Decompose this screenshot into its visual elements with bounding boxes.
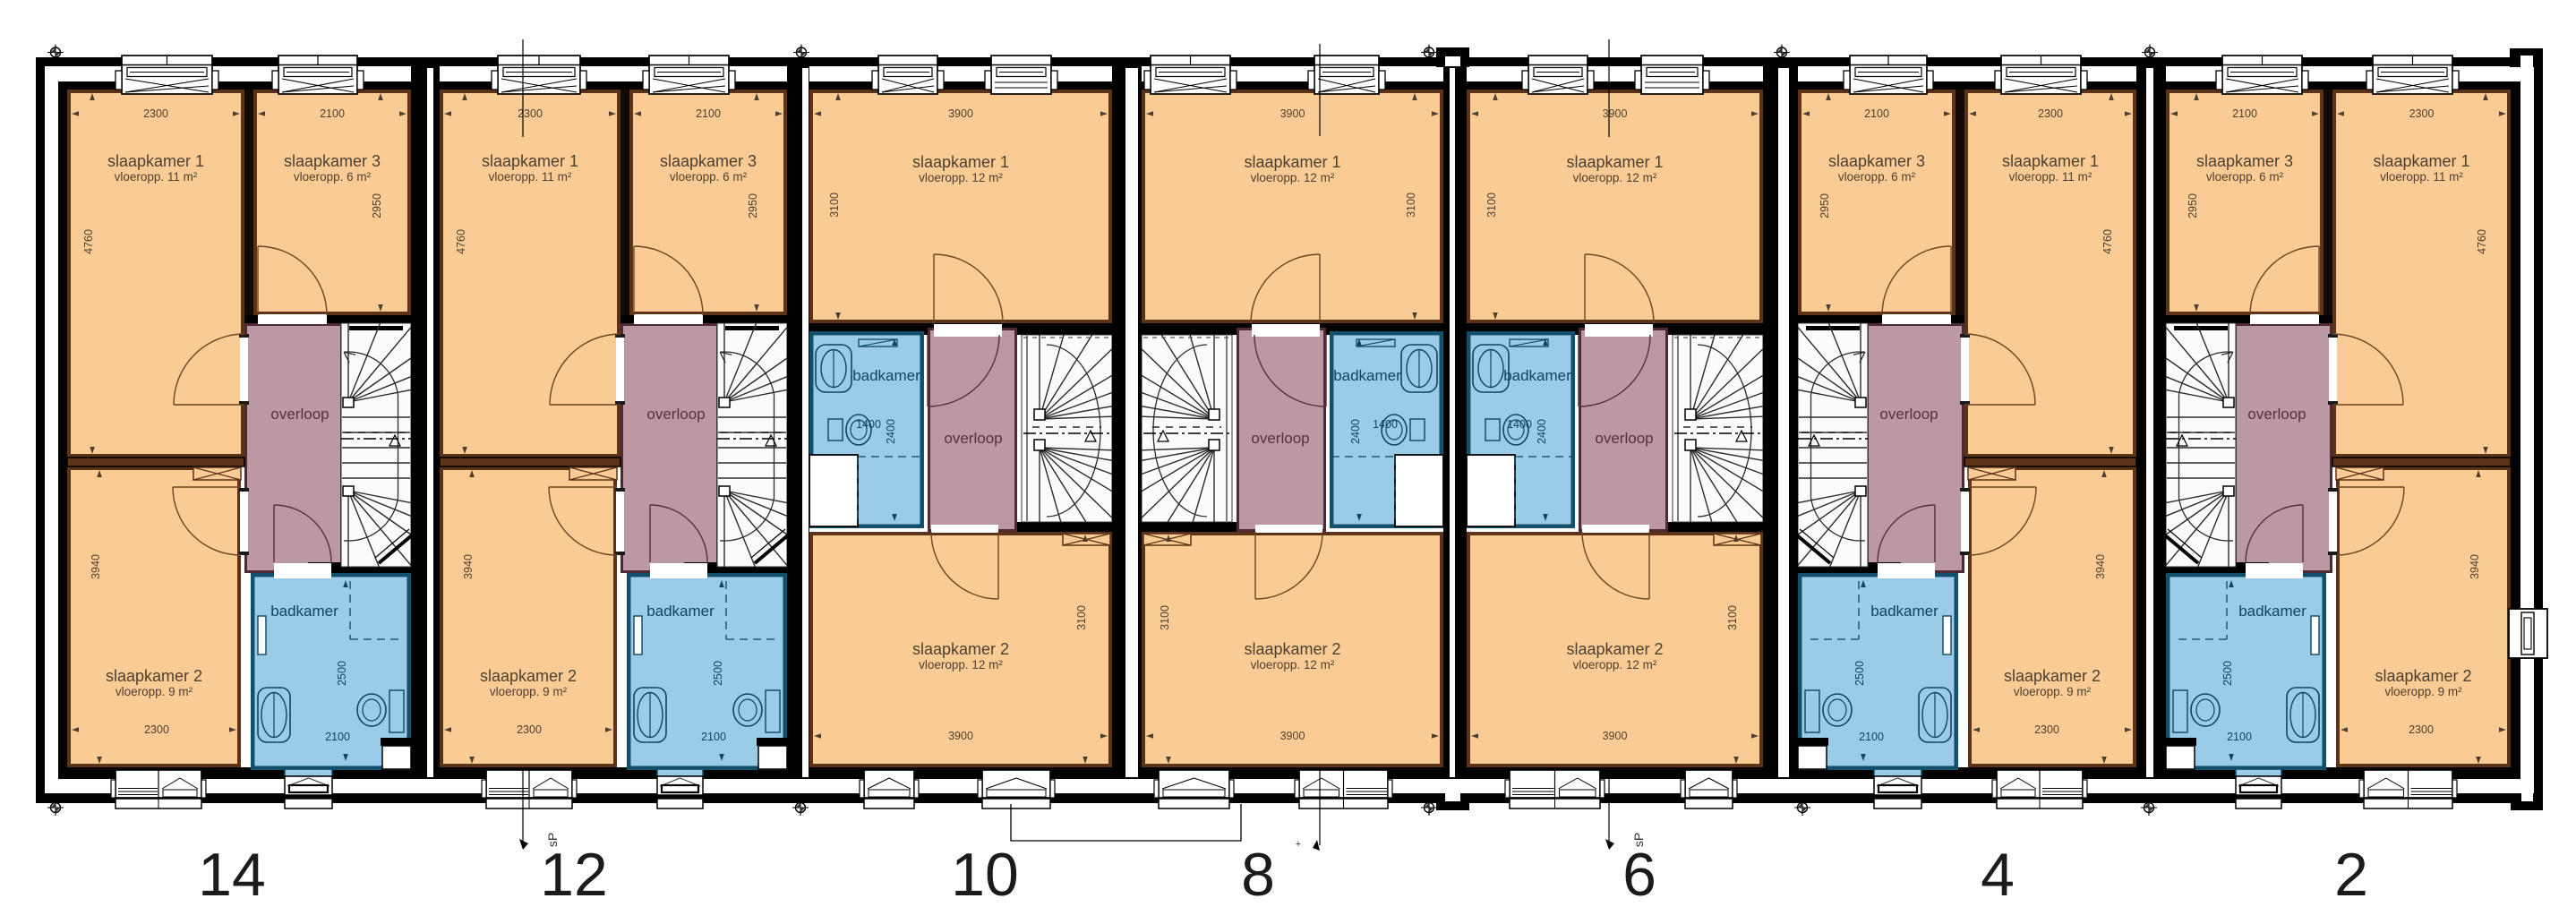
svg-text:badkamer: badkamer [2238, 603, 2306, 620]
svg-text:2100: 2100 [2227, 731, 2252, 743]
svg-text:4760: 4760 [2476, 229, 2488, 254]
svg-text:slaapkamer 3: slaapkamer 3 [2196, 152, 2293, 170]
svg-text:1400: 1400 [1373, 418, 1398, 431]
svg-text:3940: 3940 [2094, 554, 2107, 579]
svg-text:vloeropp. 6 m²: vloeropp. 6 m² [2206, 170, 2284, 184]
svg-text:3940: 3940 [462, 554, 475, 579]
svg-text:badkamer: badkamer [1503, 367, 1571, 384]
svg-text:badkamer: badkamer [270, 603, 338, 620]
svg-text:8: 8 [1241, 841, 1275, 909]
svg-text:3100: 3100 [828, 192, 841, 218]
svg-text:3900: 3900 [1280, 107, 1305, 120]
svg-text:slaapkamer 2: slaapkamer 2 [480, 667, 577, 685]
svg-text:2300: 2300 [143, 107, 168, 120]
svg-text:4: 4 [1981, 841, 2015, 909]
svg-text:slaapkamer 1: slaapkamer 1 [912, 153, 1009, 171]
svg-text:4760: 4760 [82, 229, 95, 254]
svg-text:slaapkamer 2: slaapkamer 2 [912, 640, 1009, 658]
svg-text:12: 12 [540, 841, 608, 909]
svg-text:vloeropp. 9 m²: vloeropp. 9 m² [2384, 685, 2462, 698]
svg-text:3900: 3900 [948, 107, 973, 120]
svg-text:vloeropp. 11 m²: vloeropp. 11 m² [115, 170, 198, 184]
svg-text:3900: 3900 [1603, 730, 1628, 742]
svg-text:2500: 2500 [712, 661, 724, 686]
svg-text:slaapkamer 2: slaapkamer 2 [106, 667, 202, 685]
svg-text:1400: 1400 [1507, 418, 1532, 431]
svg-text:vloeropp. 11 m²: vloeropp. 11 m² [2380, 170, 2463, 184]
svg-text:3940: 3940 [90, 554, 102, 579]
svg-text:2100: 2100 [320, 107, 345, 120]
svg-text:vloeropp. 6 m²: vloeropp. 6 m² [1838, 170, 1916, 184]
svg-text:slaapkamer 1: slaapkamer 1 [482, 152, 578, 170]
svg-text:2950: 2950 [2187, 193, 2199, 218]
svg-text:2100: 2100 [325, 731, 350, 743]
svg-text:vloeropp. 11 m²: vloeropp. 11 m² [489, 170, 572, 184]
svg-text:2: 2 [2334, 841, 2368, 909]
svg-text:vloeropp. 12 m²: vloeropp. 12 m² [919, 171, 1003, 184]
svg-text:vloeropp. 12 m²: vloeropp. 12 m² [1573, 658, 1657, 672]
svg-text:10: 10 [951, 841, 1019, 909]
svg-text:2500: 2500 [336, 661, 348, 686]
svg-text:vloeropp. 12 m²: vloeropp. 12 m² [1251, 171, 1335, 184]
svg-text:vloeropp. 11 m²: vloeropp. 11 m² [2009, 170, 2092, 184]
svg-text:3900: 3900 [1603, 107, 1628, 120]
svg-text:overloop: overloop [1595, 430, 1653, 447]
svg-text:badkamer: badkamer [1870, 603, 1938, 620]
svg-text:slaapkamer 3: slaapkamer 3 [660, 152, 757, 170]
svg-text:slaapkamer 1: slaapkamer 1 [1566, 153, 1663, 171]
svg-text:3900: 3900 [1280, 730, 1305, 742]
svg-text:2500: 2500 [2221, 661, 2234, 686]
svg-text:overloop: overloop [944, 430, 1002, 447]
svg-text:2100: 2100 [2232, 107, 2257, 120]
svg-text:4760: 4760 [455, 229, 467, 254]
svg-text:1400: 1400 [856, 418, 881, 431]
svg-text:6: 6 [1622, 841, 1656, 909]
svg-text:2100: 2100 [701, 731, 726, 743]
svg-text:3100: 3100 [1485, 192, 1498, 218]
svg-text:3100: 3100 [1159, 605, 1171, 630]
svg-text:14: 14 [198, 841, 266, 909]
svg-text:2400: 2400 [1349, 419, 1362, 444]
svg-text:2300: 2300 [517, 723, 542, 736]
svg-text:slaapkamer 1: slaapkamer 1 [1244, 153, 1340, 171]
svg-text:slaapkamer 2: slaapkamer 2 [1566, 640, 1663, 658]
svg-text:3940: 3940 [2469, 554, 2481, 579]
svg-text:2400: 2400 [1536, 419, 1548, 444]
svg-text:slaapkamer 2: slaapkamer 2 [1244, 640, 1340, 658]
svg-text:3100: 3100 [1075, 605, 1088, 630]
svg-text:badkamer: badkamer [1333, 367, 1401, 384]
svg-text:2300: 2300 [2409, 723, 2434, 736]
svg-text:vloeropp. 6 m²: vloeropp. 6 m² [294, 170, 372, 184]
svg-text:vloeropp. 6 m²: vloeropp. 6 m² [670, 170, 748, 184]
svg-text:2950: 2950 [371, 193, 383, 218]
svg-text:slaapkamer 3: slaapkamer 3 [1828, 152, 1925, 170]
svg-text:badkamer: badkamer [646, 603, 715, 620]
svg-text:3900: 3900 [948, 730, 973, 742]
svg-text:2300: 2300 [2038, 107, 2063, 120]
svg-text:2100: 2100 [696, 107, 721, 120]
svg-text:2300: 2300 [2034, 723, 2059, 736]
svg-text:badkamer: badkamer [852, 367, 920, 384]
svg-text:slaapkamer 3: slaapkamer 3 [284, 152, 381, 170]
svg-text:slaapkamer 2: slaapkamer 2 [2004, 667, 2101, 685]
svg-text:3100: 3100 [1405, 192, 1417, 218]
svg-text:vloeropp. 12 m²: vloeropp. 12 m² [1251, 658, 1335, 672]
svg-text:vloeropp. 9 m²: vloeropp. 9 m² [2014, 685, 2092, 698]
svg-text:vloeropp. 12 m²: vloeropp. 12 m² [1573, 171, 1657, 184]
svg-text:overloop: overloop [270, 406, 329, 423]
svg-text:vloeropp. 9 m²: vloeropp. 9 m² [490, 685, 568, 698]
svg-text:overloop: overloop [2247, 406, 2306, 423]
svg-text:2300: 2300 [518, 107, 543, 120]
svg-text:+: + [1296, 839, 1301, 850]
svg-text:2300: 2300 [144, 723, 169, 736]
svg-text:overloop: overloop [646, 406, 705, 423]
svg-text:slaapkamer 1: slaapkamer 1 [2002, 152, 2099, 170]
svg-text:4760: 4760 [2101, 229, 2114, 254]
svg-text:2500: 2500 [1853, 661, 1866, 686]
svg-text:slaapkamer 2: slaapkamer 2 [2375, 667, 2471, 685]
svg-text:slaapkamer 1: slaapkamer 1 [107, 152, 204, 170]
svg-text:2400: 2400 [885, 419, 897, 444]
svg-text:2950: 2950 [747, 193, 759, 218]
svg-text:vloeropp. 12 m²: vloeropp. 12 m² [919, 658, 1003, 672]
svg-text:2100: 2100 [1864, 107, 1889, 120]
svg-text:2300: 2300 [2409, 107, 2435, 120]
svg-text:3100: 3100 [1726, 605, 1739, 630]
svg-text:slaapkamer 1: slaapkamer 1 [2373, 152, 2469, 170]
svg-text:vloeropp. 9 m²: vloeropp. 9 m² [116, 685, 193, 698]
svg-text:2100: 2100 [1859, 731, 1884, 743]
svg-text:overloop: overloop [1879, 406, 1938, 423]
svg-text:overloop: overloop [1251, 430, 1309, 447]
svg-text:2950: 2950 [1819, 193, 1831, 218]
